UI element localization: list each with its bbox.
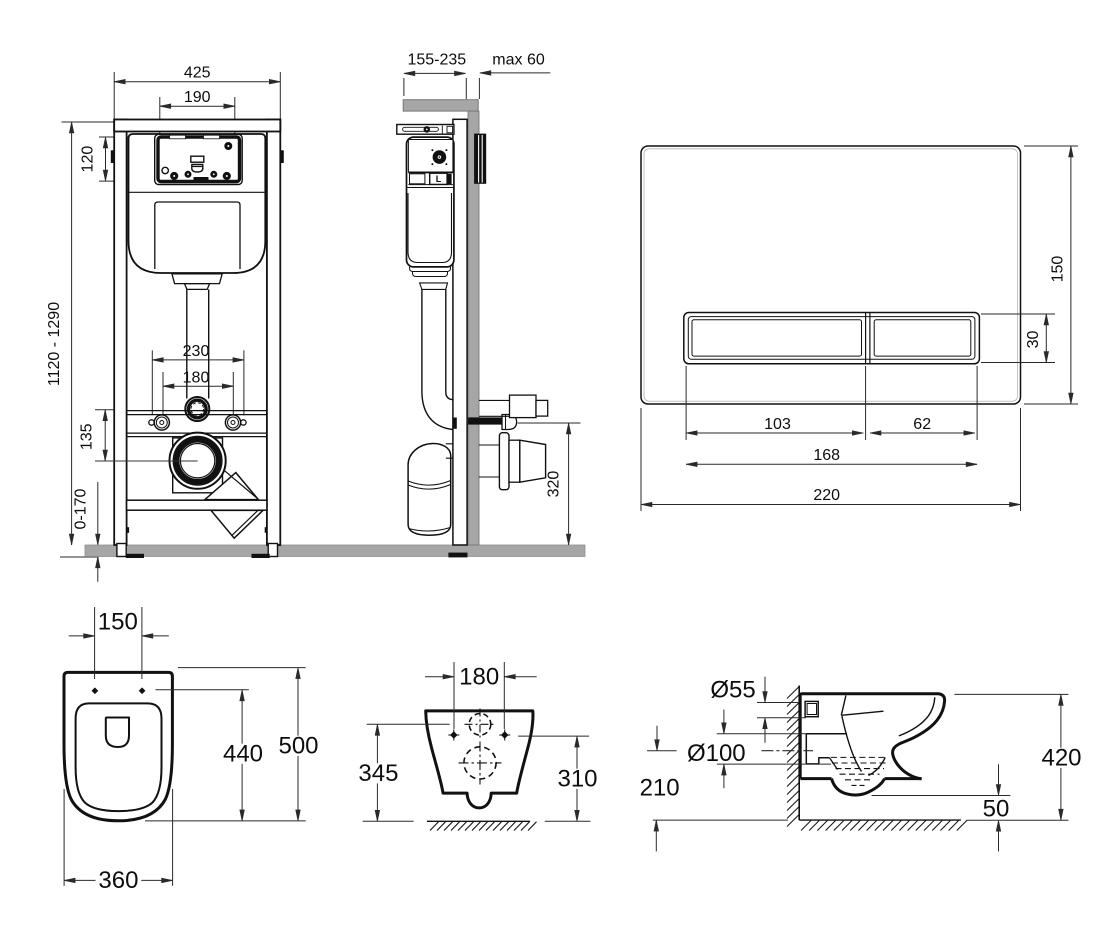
svg-text:1120 - 1290: 1120 - 1290 — [46, 302, 63, 386]
svg-text:210: 210 — [640, 775, 680, 802]
svg-text:0-170: 0-170 — [73, 488, 90, 529]
svg-text:155-235: 155-235 — [407, 52, 466, 69]
svg-text:220: 220 — [813, 487, 840, 504]
svg-text:320: 320 — [546, 471, 563, 498]
svg-text:135: 135 — [78, 423, 95, 450]
svg-text:62: 62 — [913, 416, 931, 433]
svg-text:190: 190 — [184, 89, 211, 106]
svg-text:420: 420 — [1041, 745, 1081, 772]
svg-text:30: 30 — [1025, 331, 1042, 349]
svg-text:180: 180 — [459, 664, 499, 691]
svg-text:500: 500 — [278, 733, 318, 760]
svg-text:168: 168 — [813, 447, 840, 464]
svg-text:150: 150 — [98, 609, 138, 636]
svg-text:50: 50 — [983, 796, 1010, 823]
svg-text:310: 310 — [557, 766, 597, 793]
svg-text:max 60: max 60 — [492, 52, 545, 69]
svg-text:440: 440 — [223, 741, 263, 768]
svg-text:345: 345 — [358, 760, 398, 787]
svg-text:L: L — [436, 174, 442, 184]
svg-text:425: 425 — [184, 65, 211, 82]
svg-text:120: 120 — [80, 146, 97, 173]
svg-text:Ø100: Ø100 — [687, 740, 746, 767]
svg-text:Ø55: Ø55 — [710, 677, 755, 704]
svg-text:360: 360 — [98, 867, 138, 894]
svg-text:103: 103 — [764, 416, 791, 433]
svg-text:150: 150 — [1050, 256, 1067, 283]
